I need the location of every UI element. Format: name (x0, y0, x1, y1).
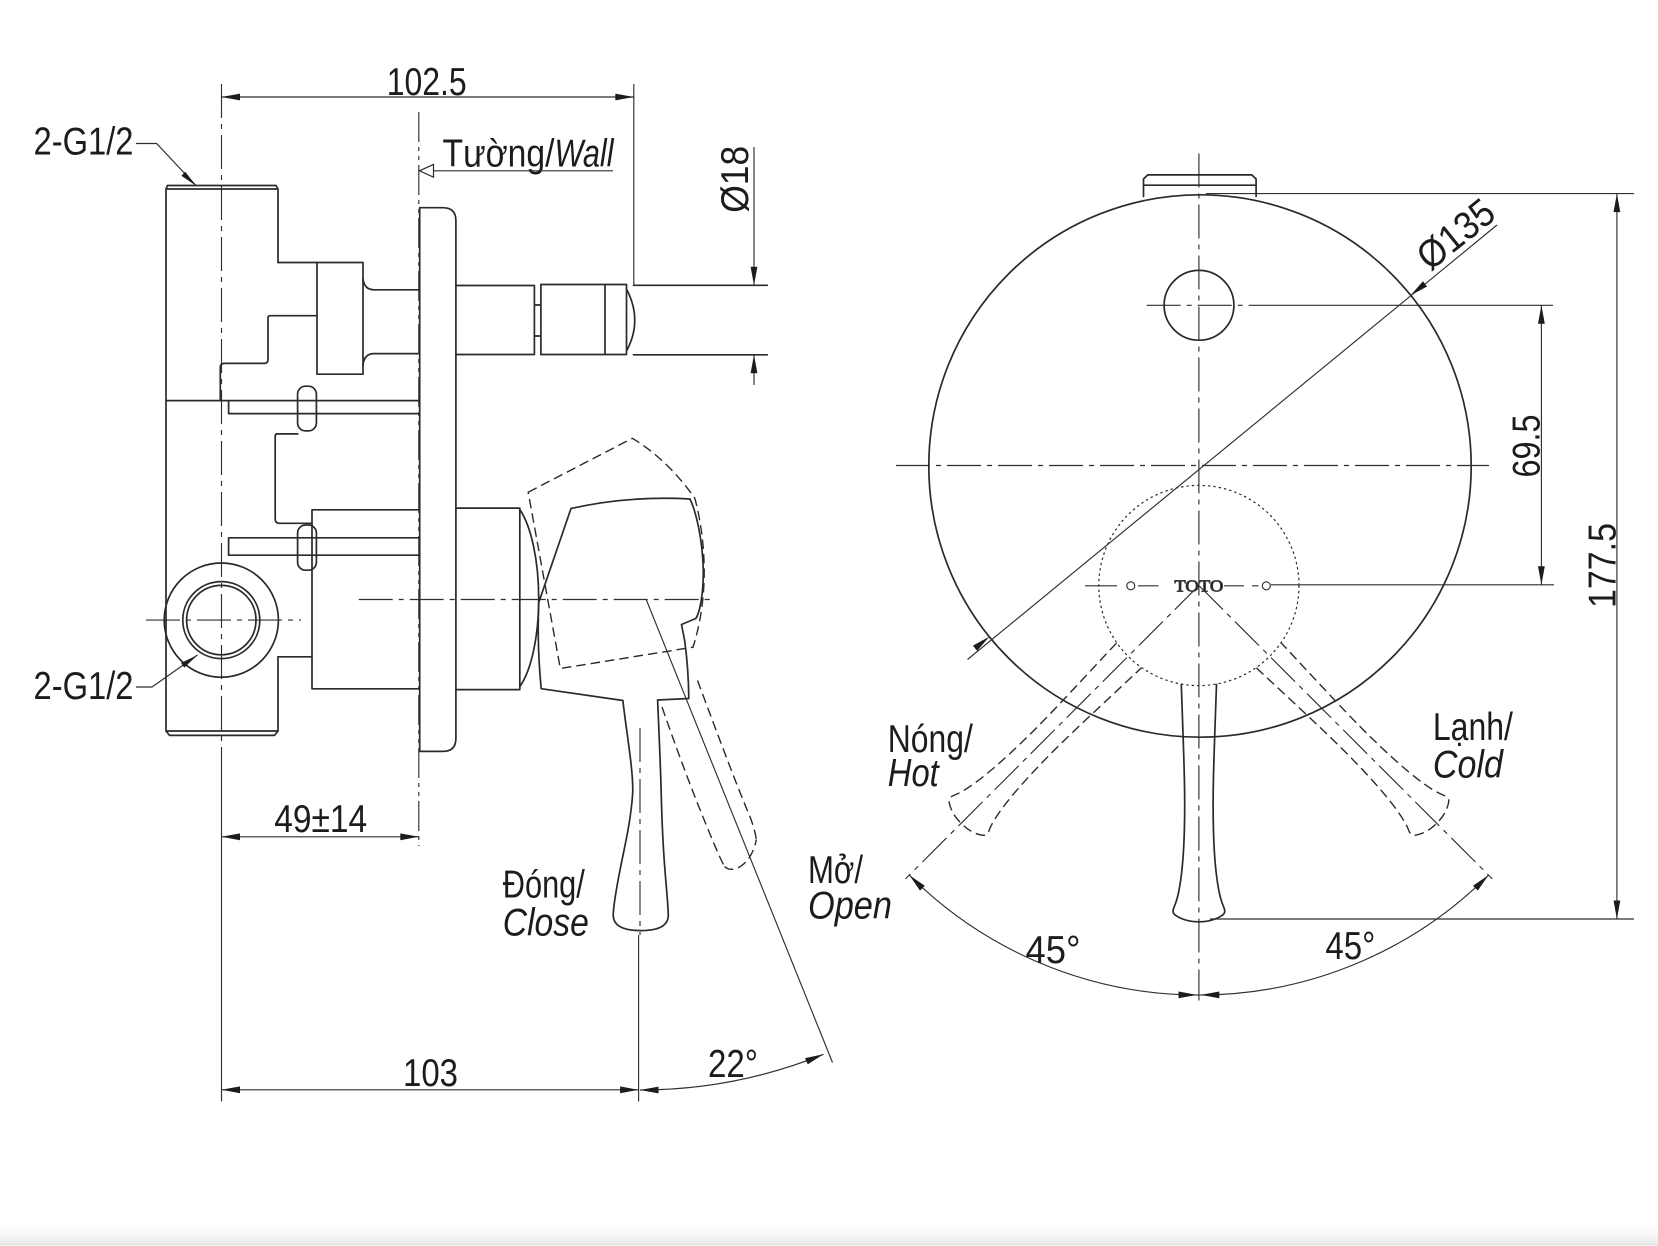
svg-text:69.5: 69.5 (1506, 415, 1549, 478)
svg-text:Tường/: Tường/ (443, 133, 555, 176)
svg-text:49±14: 49±14 (274, 798, 367, 841)
svg-text:102.5: 102.5 (387, 61, 467, 104)
svg-text:2-G1/2: 2-G1/2 (34, 665, 134, 708)
svg-text:177.5: 177.5 (1582, 523, 1625, 608)
svg-text:Hot: Hot (888, 752, 941, 795)
svg-text:Open: Open (808, 885, 892, 928)
svg-text:Wall: Wall (555, 133, 615, 176)
svg-text:22°: 22° (708, 1043, 758, 1086)
svg-text:Cold: Cold (1433, 744, 1504, 787)
svg-text:2-G1/2: 2-G1/2 (34, 120, 134, 163)
svg-text:45°: 45° (1325, 925, 1375, 968)
svg-text:103: 103 (403, 1052, 458, 1095)
svg-text:Ø18: Ø18 (714, 146, 757, 213)
svg-text:45°: 45° (1026, 929, 1081, 972)
svg-text:Đóng/: Đóng/ (503, 864, 585, 907)
svg-text:Close: Close (503, 902, 589, 945)
